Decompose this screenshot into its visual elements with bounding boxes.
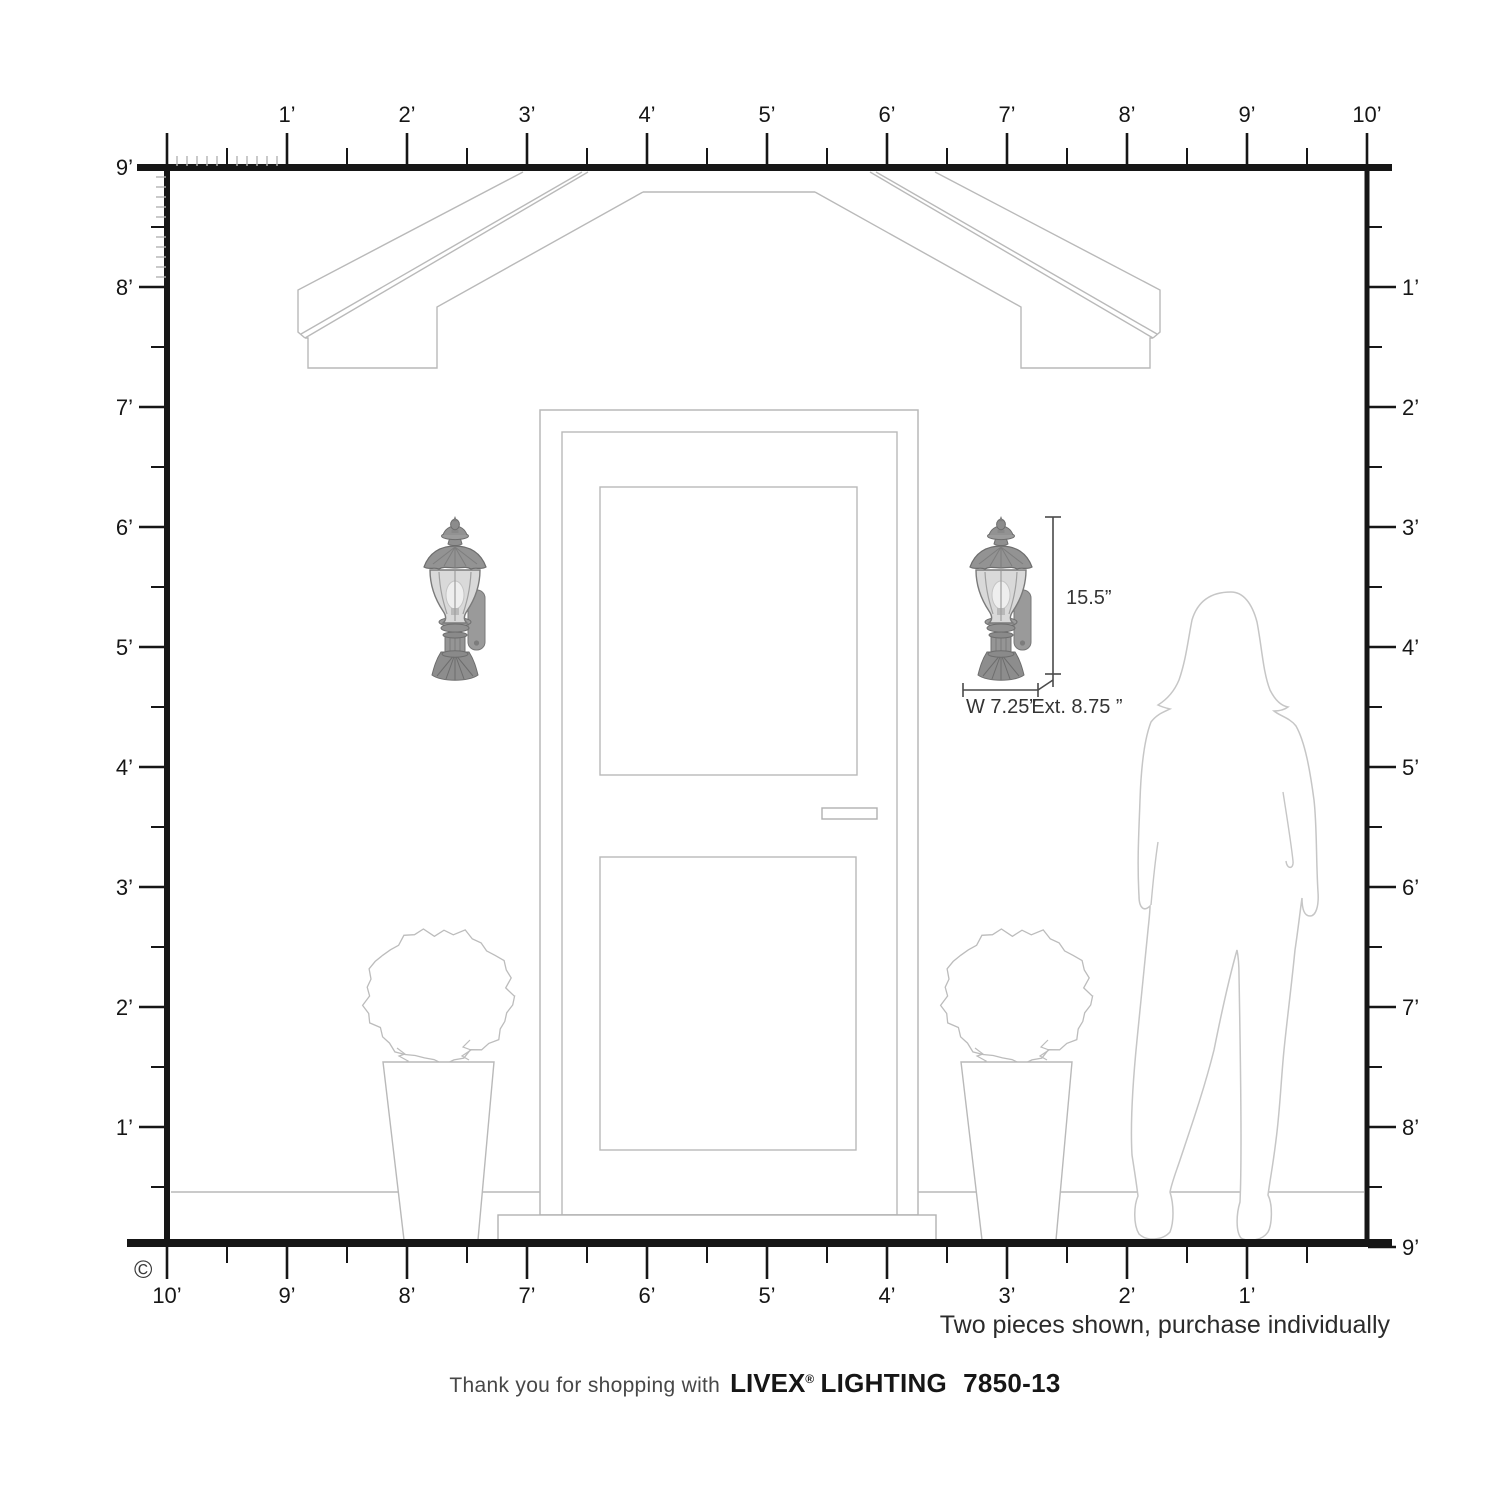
planter bbox=[941, 929, 1093, 1240]
ruler-label: 5’ bbox=[116, 635, 133, 660]
footer-brand: LIVEX bbox=[730, 1368, 805, 1398]
ruler-label: 1’ bbox=[1402, 275, 1419, 300]
ruler-label: 2’ bbox=[116, 995, 133, 1020]
ruler-label: 2’ bbox=[398, 102, 415, 127]
roof-rake-left-outer bbox=[298, 172, 523, 338]
ruler-label: 4’ bbox=[878, 1283, 895, 1308]
ruler-label: 5’ bbox=[1402, 755, 1419, 780]
woman-outline bbox=[1131, 592, 1318, 1240]
roof-rake-right-band bbox=[870, 172, 1157, 338]
footer-thanks: Thank you for shopping with bbox=[449, 1374, 720, 1397]
door-step bbox=[498, 1215, 936, 1242]
ruler-label: 9’ bbox=[1402, 1235, 1419, 1260]
left-ruler: 9’8’7’6’5’4’3’2’1’ bbox=[116, 155, 167, 1247]
bottom-ruler: 10’9’8’7’6’5’4’3’2’1’ bbox=[127, 1243, 1392, 1308]
footer-model-number: 7850-13 bbox=[963, 1368, 1061, 1398]
ruler-label: 5’ bbox=[758, 1283, 775, 1308]
ruler-label: 9’ bbox=[1238, 102, 1255, 127]
ruler-label: 3’ bbox=[998, 1283, 1015, 1308]
extension-dimension-label: Ext. 8.75 ” bbox=[1031, 696, 1122, 718]
porch-gable bbox=[298, 172, 1160, 368]
topiary-bush bbox=[363, 929, 515, 1065]
ruler-label: 4’ bbox=[116, 755, 133, 780]
right-lantern bbox=[970, 516, 1032, 680]
roof-rake-left-band bbox=[301, 172, 588, 338]
purchase-note: Two pieces shown, purchase individually bbox=[940, 1311, 1391, 1339]
ruler-label: 8’ bbox=[116, 275, 133, 300]
planter-pot bbox=[383, 1062, 494, 1240]
ruler-label: 10’ bbox=[152, 1283, 181, 1308]
ruler-label: 2’ bbox=[1402, 395, 1419, 420]
ruler-label: 9’ bbox=[278, 1283, 295, 1308]
ruler-label: 6’ bbox=[1402, 875, 1419, 900]
scale-diagram: 15.5” W 7.25” Ext. 8.75 ” Two pieces sho… bbox=[0, 0, 1500, 1500]
right-ruler: 1’2’3’4’5’6’7’8’9’ bbox=[1367, 164, 1419, 1260]
ruler-label: 3’ bbox=[116, 875, 133, 900]
ruler-label: 4’ bbox=[1402, 635, 1419, 660]
ruler-label: 6’ bbox=[878, 102, 895, 127]
planter-pot bbox=[961, 1062, 1072, 1240]
height-dimension-label: 15.5” bbox=[1066, 587, 1112, 609]
scale-diagram-page: 15.5” W 7.25” Ext. 8.75 ” Two pieces sho… bbox=[0, 0, 1500, 1500]
ruler-label: 8’ bbox=[398, 1283, 415, 1308]
topiary-bush bbox=[941, 929, 1093, 1065]
footer-line: Thank you for shopping withLIVEX®LIGHTIN… bbox=[0, 1368, 1500, 1399]
ruler-label: 7’ bbox=[116, 395, 133, 420]
roof-rake-left-soffit bbox=[305, 192, 643, 368]
ruler-label: 4’ bbox=[638, 102, 655, 127]
width-dimension-label: W 7.25” bbox=[966, 696, 1036, 718]
wall-lantern-icon bbox=[424, 516, 486, 680]
ruler-label: 1’ bbox=[116, 1115, 133, 1140]
ruler-label: 8’ bbox=[1402, 1115, 1419, 1140]
ruler-label: 7’ bbox=[1402, 995, 1419, 1020]
roof-rake-right-soffit bbox=[815, 192, 1153, 368]
left-lantern bbox=[424, 516, 486, 680]
door bbox=[498, 410, 936, 1242]
ruler-label: 3’ bbox=[1402, 515, 1419, 540]
ruler-label: 8’ bbox=[1118, 102, 1135, 127]
ruler-label: 3’ bbox=[518, 102, 535, 127]
planter bbox=[363, 929, 515, 1240]
ruler-label: 2’ bbox=[1118, 1283, 1135, 1308]
ruler-label: 1’ bbox=[1238, 1283, 1255, 1308]
ruler-label: 5’ bbox=[758, 102, 775, 127]
ruler-label: 9’ bbox=[116, 155, 133, 180]
ruler-label: 10’ bbox=[1352, 102, 1381, 127]
registered-mark: ® bbox=[805, 1372, 814, 1386]
roof-rake-right-outer bbox=[935, 172, 1160, 338]
ruler-label: 7’ bbox=[998, 102, 1015, 127]
ruler-label: 6’ bbox=[638, 1283, 655, 1308]
ruler-label: 1’ bbox=[278, 102, 295, 127]
copyright-symbol: © bbox=[134, 1256, 153, 1284]
footer-brand-suffix: LIGHTING bbox=[820, 1368, 947, 1398]
door-handle bbox=[822, 808, 877, 819]
ruler-label: 6’ bbox=[116, 515, 133, 540]
top-ruler: 1’2’3’4’5’6’7’8’9’10’ bbox=[137, 102, 1392, 168]
ext-dim-leader bbox=[1038, 680, 1053, 690]
woman-silhouette bbox=[1131, 592, 1318, 1240]
ruler-label: 7’ bbox=[518, 1283, 535, 1308]
wall-lantern-icon bbox=[970, 516, 1032, 680]
